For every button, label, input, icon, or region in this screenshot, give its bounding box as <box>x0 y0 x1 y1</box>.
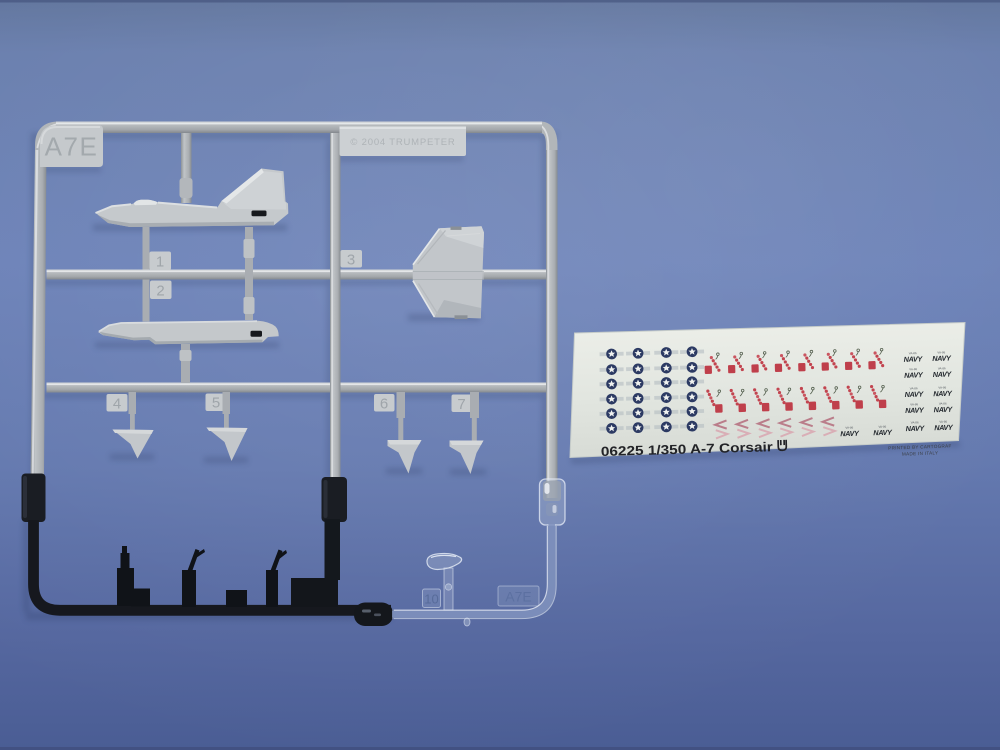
svg-text:A7E: A7E <box>45 132 99 162</box>
svg-text:A7E: A7E <box>505 589 531 605</box>
svg-text:1: 1 <box>156 254 164 271</box>
svg-text:4: 4 <box>113 396 121 413</box>
svg-text:3: 3 <box>347 252 355 269</box>
svg-text:10: 10 <box>424 592 438 607</box>
svg-text:2: 2 <box>156 283 164 300</box>
svg-text:© 2004 TRUMPETER: © 2004 TRUMPETER <box>350 137 455 148</box>
svg-text:7: 7 <box>457 396 465 413</box>
svg-text:6: 6 <box>380 396 388 413</box>
svg-text:5: 5 <box>212 395 220 412</box>
